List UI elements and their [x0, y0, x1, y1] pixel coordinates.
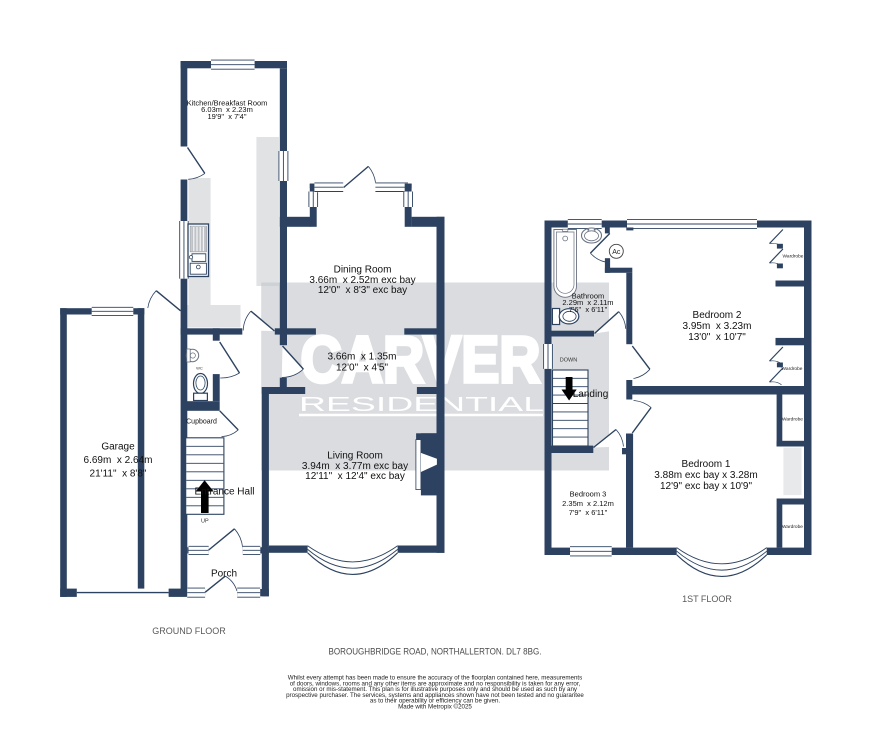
svg-text:RESIDENTIAL: RESIDENTIAL [299, 393, 544, 416]
svg-text:GROUND FLOOR: GROUND FLOOR [152, 626, 226, 636]
svg-text:12'11" x 12'4" exc bay: 12'11" x 12'4" exc bay [305, 471, 405, 482]
svg-text:7'6" x 6'11": 7'6" x 6'11" [569, 305, 608, 314]
svg-text:BOROUGHBRIDGE ROAD, NORTHALLER: BOROUGHBRIDGE ROAD, NORTHALLERTON. DL7 8… [329, 647, 542, 657]
svg-text:Landing: Landing [573, 389, 609, 400]
svg-text:21'11" x 8'8": 21'11" x 8'8" [90, 469, 147, 480]
svg-text:Bedroom 3: Bedroom 3 [570, 490, 607, 499]
svg-text:1ST FLOOR: 1ST FLOOR [682, 594, 732, 604]
svg-text:Wardrobe: Wardrobe [782, 524, 803, 530]
svg-text:Bedroom 1: Bedroom 1 [682, 459, 731, 470]
svg-text:Porch: Porch [211, 569, 237, 580]
svg-text:Wardrobe: Wardrobe [783, 254, 804, 260]
svg-text:UP: UP [201, 519, 209, 525]
svg-text:19'9" x 7'4": 19'9" x 7'4" [207, 112, 246, 121]
svg-text:Cupboard: Cupboard [186, 419, 217, 426]
svg-text:3.66m x 1.35m: 3.66m x 1.35m [328, 352, 397, 363]
svg-text:12'9" exc bay x 10'9": 12'9" exc bay x 10'9" [660, 481, 753, 492]
svg-text:Bedroom 2: Bedroom 2 [693, 310, 742, 321]
svg-text:13'0" x 10'7": 13'0" x 10'7" [688, 332, 746, 343]
svg-text:7'9" x 6'11": 7'9" x 6'11" [569, 508, 608, 517]
svg-text:Made with Metropix ©2025: Made with Metropix ©2025 [398, 703, 472, 710]
svg-text:3.88m exc bay x 3.28m: 3.88m exc bay x 3.28m [654, 470, 757, 481]
svg-text:2.35m x 2.12m: 2.35m x 2.12m [562, 499, 614, 508]
svg-text:12'0" x 8'3" exc bay: 12'0" x 8'3" exc bay [318, 285, 407, 296]
svg-text:Wardrobe: Wardrobe [782, 417, 803, 423]
svg-text:Ac: Ac [612, 249, 621, 256]
svg-text:Garage: Garage [101, 442, 135, 453]
svg-text:3.95m x 3.23m: 3.95m x 3.23m [683, 321, 752, 332]
svg-text:Entrance Hall: Entrance Hall [194, 487, 254, 498]
svg-text:12'0" x 4'5": 12'0" x 4'5" [336, 363, 389, 374]
svg-text:DOWN: DOWN [560, 358, 577, 364]
svg-text:Wardrobe: Wardrobe [782, 366, 803, 372]
svg-text:6.69m x 2.64m: 6.69m x 2.64m [84, 455, 153, 466]
svg-text:WC: WC [196, 366, 203, 371]
